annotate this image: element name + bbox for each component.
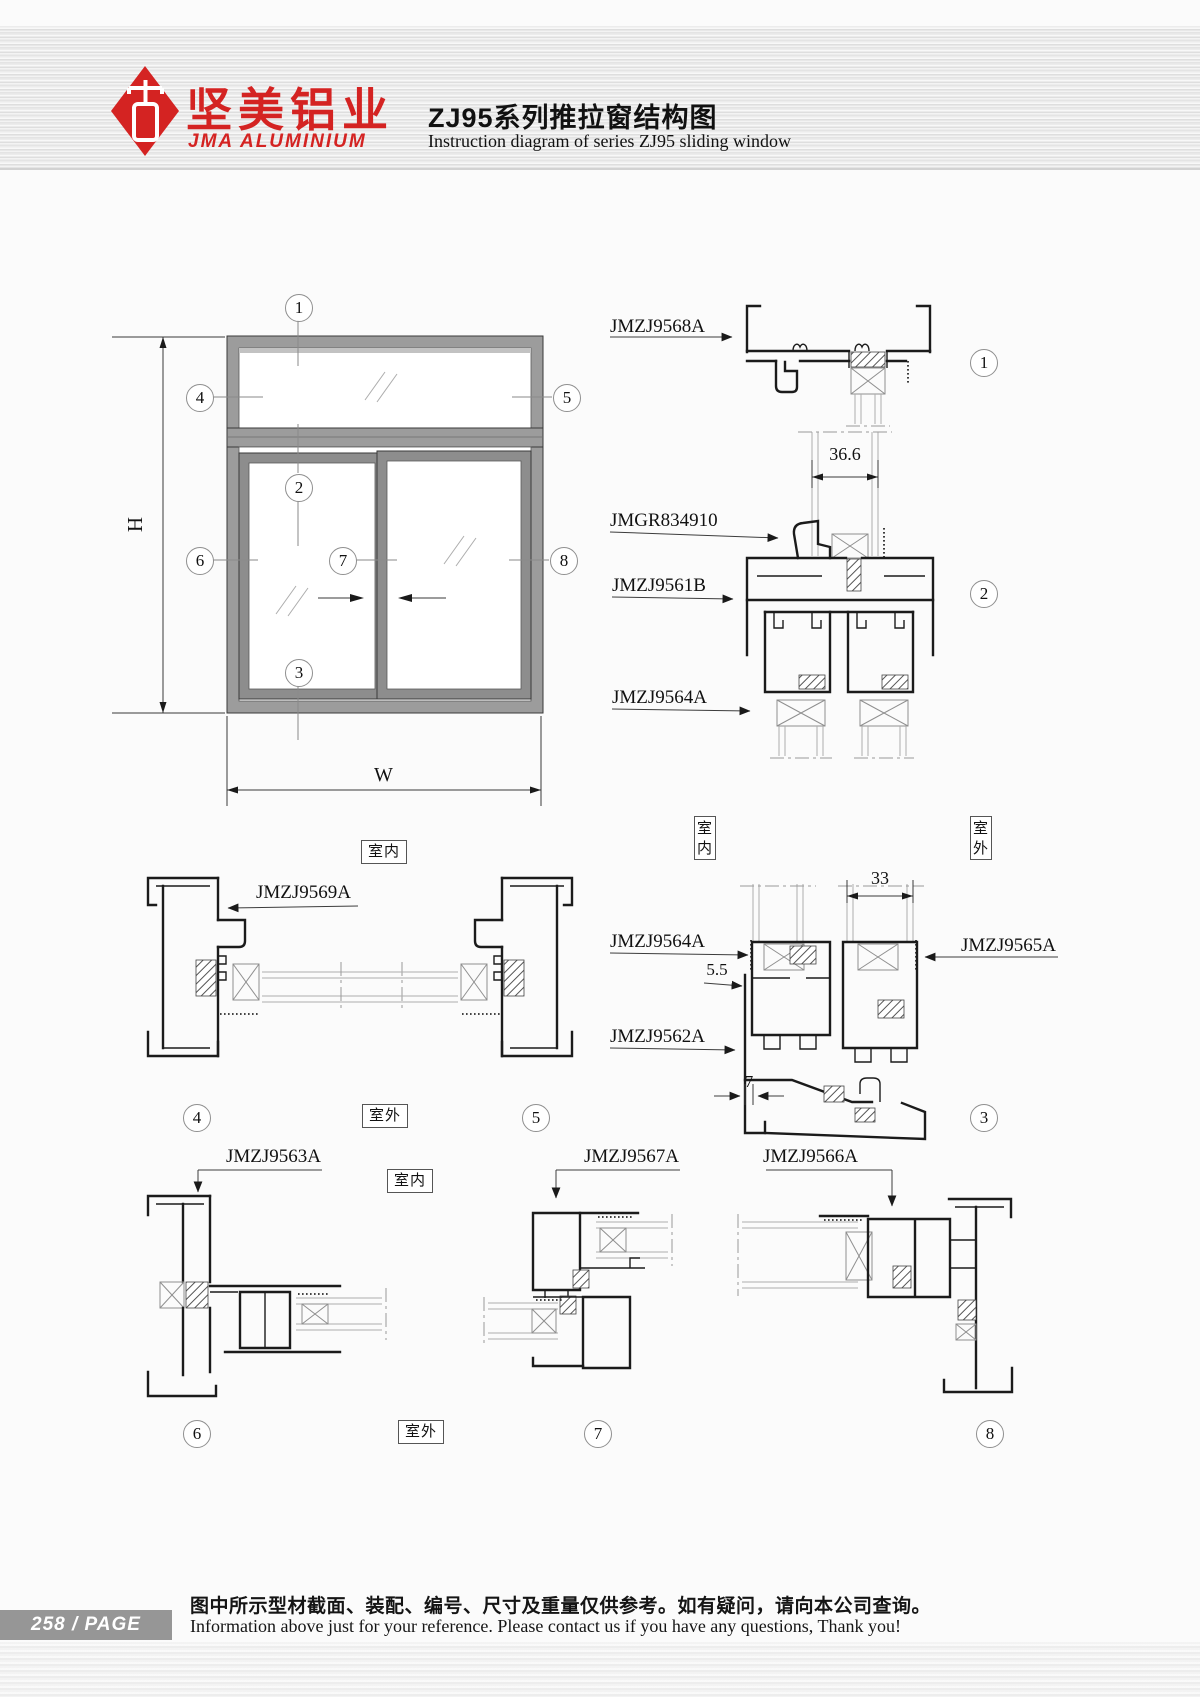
part-label-jmzj9564a-s2: JMZJ9564A [612, 687, 707, 709]
dim-7: 7 [742, 1072, 756, 1092]
dim-36-6: 36.6 [823, 444, 867, 465]
section-7-drawing [484, 1170, 680, 1368]
dim-width: W [374, 764, 393, 787]
footer-note-en: Information above just for your referenc… [190, 1616, 901, 1637]
part-label-jmgr834910: JMGR834910 [610, 510, 718, 532]
dim-height: H [123, 517, 148, 532]
callout-3-elevation: 3 [285, 659, 313, 687]
part-label-jmzj9561b: JMZJ9561B [612, 575, 706, 597]
indoor-label-mid: 室内 [361, 840, 407, 864]
callout-8-elevation: 8 [550, 547, 578, 575]
section-6-drawing [148, 1170, 386, 1396]
page-number-bar: 258 / PAGE [0, 1610, 172, 1640]
callout-4-elevation: 4 [186, 384, 214, 412]
section-4-drawing [148, 878, 402, 1056]
callout-7-section: 7 [584, 1420, 612, 1448]
callout-5-elevation: 5 [553, 384, 581, 412]
part-label-jmzj9563a: JMZJ9563A [226, 1146, 321, 1168]
part-label-jmzj9565a: JMZJ9565A [961, 935, 1056, 957]
part-label-jmzj9567a: JMZJ9567A [584, 1146, 679, 1168]
catalog-page: 坚美铝业 JMA ALUMINIUM ZJ95系列推拉窗结构图 Instruct… [0, 0, 1200, 1697]
dim-5-5: 5.5 [702, 960, 732, 980]
callout-7-elevation: 7 [329, 547, 357, 575]
callout-6-elevation: 6 [186, 547, 214, 575]
section-3-drawing [610, 880, 1058, 1139]
callout-8-section: 8 [976, 1420, 1004, 1448]
callout-4-section: 4 [183, 1104, 211, 1132]
footer-note-cn: 图中所示型材截面、装配、编号、尺寸及重量仅供参考。如有疑问，请向本公司查询。 [190, 1591, 931, 1618]
indoor-label-bottom: 室内 [387, 1169, 433, 1193]
callout-6-section: 6 [183, 1420, 211, 1448]
section-8-drawing [738, 1170, 1012, 1392]
part-label-jmzj9562a: JMZJ9562A [610, 1026, 705, 1048]
section-5-drawing [341, 878, 572, 1056]
callout-2-elevation: 2 [285, 474, 313, 502]
indoor-label-section3: 室内 [694, 816, 716, 860]
callout-3-section: 3 [970, 1104, 998, 1132]
outdoor-label-mid: 室外 [362, 1104, 408, 1128]
callout-1-elevation: 1 [285, 294, 313, 322]
callout-1-section: 1 [970, 349, 998, 377]
callout-2-section: 2 [970, 580, 998, 608]
dim-33: 33 [865, 868, 895, 889]
part-label-jmzj9564a-s3: JMZJ9564A [610, 931, 705, 953]
part-label-jmzj9568a: JMZJ9568A [610, 316, 705, 338]
outdoor-label-bottom: 室外 [398, 1420, 444, 1444]
callout-5-section: 5 [522, 1104, 550, 1132]
outdoor-label-section3: 室外 [970, 816, 992, 860]
part-label-jmzj9566a: JMZJ9566A [763, 1146, 858, 1168]
part-label-jmzj9569a: JMZJ9569A [256, 882, 351, 904]
